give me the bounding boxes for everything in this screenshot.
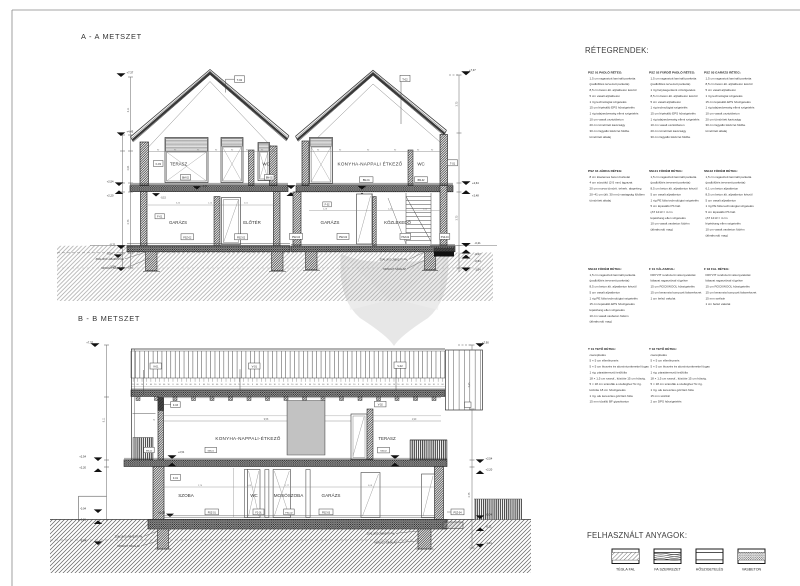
svg-text:10: 10: [318, 384, 320, 386]
svg-text:2,75: 2,75: [468, 492, 471, 497]
svg-text:-0,21: -0,21: [475, 241, 482, 245]
svg-text:-0,21: -0,21: [486, 525, 493, 529]
svg-text:+2,54: +2,54: [79, 455, 86, 459]
svg-text:FELHASZNÁLT ANYAGOK:: FELHASZNÁLT ANYAGOK:: [587, 531, 687, 540]
svg-text:60: 60: [137, 384, 139, 386]
svg-text:SM-03 FÖDÉM RÉTEG:: SM-03 FÖDÉM RÉTEG:: [588, 266, 622, 271]
svg-text:+7,37: +7,37: [86, 341, 93, 345]
svg-text:60: 60: [243, 384, 245, 386]
svg-text:ZSALUKŐ LÁBAZATI FAL: ZSALUKŐ LÁBAZATI FAL: [380, 258, 409, 261]
svg-text:MONOLIT SÁVALAP: MONOLIT SÁVALAP: [383, 268, 406, 271]
svg-text:-0,27: -0,27: [475, 252, 482, 256]
svg-text:V-02: V-02: [378, 404, 384, 407]
svg-text:10: 10: [265, 384, 267, 386]
svg-text:10: 10: [340, 384, 342, 386]
svg-text:10: 10: [221, 384, 223, 386]
svg-text:+2,54: +2,54: [178, 451, 185, 454]
svg-text:SM-02 FÖDÉM RÉTEG:: SM-02 FÖDÉM RÉTEG:: [704, 168, 738, 173]
svg-text:-1,04: -1,04: [475, 268, 482, 272]
svg-text:PSZ 03 GARÁZS RÉTEG:: PSZ 03 GARÁZS RÉTEG:: [704, 70, 741, 75]
svg-text:+2,54: +2,54: [107, 180, 114, 184]
svg-text:TERASZ: TERASZ: [170, 162, 188, 167]
svg-text:60: 60: [282, 384, 284, 386]
svg-text:10: 10: [313, 384, 315, 386]
svg-text:PSZ-02: PSZ-02: [339, 236, 348, 239]
svg-text:10: 10: [185, 384, 187, 386]
svg-text:FA SZERKEZET: FA SZERKEZET: [654, 567, 681, 571]
svg-text:10: 10: [327, 384, 329, 386]
svg-text:PSZ-01: PSZ-01: [208, 512, 217, 515]
svg-text:10: 10: [181, 384, 183, 386]
svg-text:60: 60: [229, 384, 231, 386]
svg-text:9,58: 9,58: [264, 419, 269, 421]
svg-text:TÉGLA FAL: TÉGLA FAL: [616, 566, 635, 571]
svg-text:2,73: 2,73: [127, 219, 130, 224]
svg-text:HŐSZIGETELÉS: HŐSZIGETELÉS: [696, 566, 724, 571]
svg-text:BM-01: BM-01: [363, 180, 370, 182]
svg-text:10: 10: [371, 384, 373, 386]
svg-text:60: 60: [269, 384, 271, 386]
svg-text:SM-02: SM-02: [146, 450, 153, 452]
svg-text:60: 60: [176, 384, 178, 386]
svg-text:BM-02: BM-02: [182, 178, 189, 180]
svg-text:WC: WC: [262, 162, 269, 167]
svg-text:+7,37: +7,37: [127, 71, 134, 75]
svg-text:GARÁZS: GARÁZS: [321, 219, 340, 225]
svg-text:KONYHA-NAPPALI-ÉTKEZŐ: KONYHA-NAPPALI-ÉTKEZŐ: [215, 435, 280, 441]
svg-text:RÉTEGRENDEK:: RÉTEGRENDEK:: [585, 46, 649, 55]
svg-text:10: 10: [433, 384, 435, 386]
svg-text:8: 8: [172, 384, 173, 386]
svg-text:PSZ-04: PSZ-04: [441, 237, 450, 239]
svg-text:B - B METSZET: B - B METSZET: [78, 314, 140, 323]
svg-text:PSZ 04 JÁRDA RÉTEG:: PSZ 04 JÁRDA RÉTEG:: [588, 168, 622, 173]
svg-text:KÖZLEKEDŐ: KÖZLEKEDŐ: [384, 220, 411, 225]
svg-text:ZSALUKŐ LÁBAZATI FAL: ZSALUKŐ LÁBAZATI FAL: [96, 258, 125, 261]
svg-text:-0,04: -0,04: [80, 507, 87, 511]
svg-text:KONYHA-NAPPALI ÉTKEZŐ: KONYHA-NAPPALI ÉTKEZŐ: [338, 161, 403, 167]
svg-text:10: 10: [168, 384, 170, 386]
svg-text:V-02: V-02: [397, 364, 403, 368]
svg-text:10: 10: [132, 384, 134, 386]
svg-text:60: 60: [309, 384, 311, 386]
svg-text:10: 10: [274, 384, 276, 386]
svg-text:T 02 TETŐ RÉTEG:: T 02 TETŐ RÉTEG:: [649, 346, 677, 351]
svg-text:-0,15: -0,15: [161, 198, 167, 200]
svg-text:10: 10: [380, 384, 382, 386]
svg-text:PSZ-02: PSZ-02: [183, 237, 192, 240]
svg-text:10: 10: [397, 384, 399, 386]
svg-text:ZSALUKŐ LÁBAZATI FAL: ZSALUKŐ LÁBAZATI FAL: [367, 532, 396, 535]
svg-text:8: 8: [252, 384, 253, 386]
svg-text:10: 10: [154, 384, 156, 386]
svg-text:WC: WC: [250, 493, 257, 498]
svg-text:10: 10: [424, 384, 426, 386]
svg-text:-0,21: -0,21: [80, 518, 87, 522]
svg-text:+2,64: +2,64: [472, 181, 479, 185]
svg-text:F-03: F-03: [173, 404, 179, 407]
svg-text:60: 60: [335, 384, 337, 386]
svg-text:60: 60: [428, 384, 430, 386]
svg-text:2,64: 2,64: [127, 165, 130, 170]
svg-text:3,11: 3,11: [127, 107, 130, 112]
svg-text:ZSALUKŐ LÁBAZATI FAL: ZSALUKŐ LÁBAZATI FAL: [115, 535, 144, 538]
svg-text:8: 8: [358, 384, 359, 386]
svg-text:PSZ-02: PSZ-02: [237, 237, 246, 240]
svg-text:10: 10: [353, 384, 355, 386]
svg-text:5,11: 5,11: [103, 417, 106, 422]
svg-text:PSZ 01 PADLÓ RÉTEG:: PSZ 01 PADLÓ RÉTEG:: [588, 70, 622, 75]
svg-text:10: 10: [406, 384, 408, 386]
svg-text:60: 60: [389, 384, 391, 386]
svg-text:GARÁZS: GARÁZS: [169, 220, 187, 225]
svg-text:PSZ 02 FÜRDŐ PADLÓ RÉTEG:: PSZ 02 FÜRDŐ PADLÓ RÉTEG:: [649, 70, 695, 75]
svg-text:8: 8: [305, 384, 306, 386]
svg-text:60: 60: [349, 384, 351, 386]
svg-text:10: 10: [419, 384, 421, 386]
svg-text:VASBETON: VASBETON: [742, 567, 762, 571]
svg-text:+2,20: +2,20: [486, 468, 493, 472]
svg-text:10: 10: [260, 384, 262, 386]
svg-text:BM-02: BM-02: [266, 178, 273, 180]
svg-text:SM-01: SM-01: [208, 450, 215, 452]
svg-text:MONOLIT SÁVALAP: MONOLIT SÁVALAP: [101, 267, 124, 270]
svg-text:10: 10: [212, 384, 214, 386]
svg-text:V-01: V-01: [252, 365, 258, 369]
svg-text:±0,00: ±0,00: [158, 511, 165, 515]
svg-text:T-01: T-01: [450, 162, 456, 166]
svg-text:1,90: 1,90: [412, 419, 417, 421]
svg-text:60: 60: [415, 384, 417, 386]
svg-text:8: 8: [438, 384, 439, 386]
svg-text:8: 8: [279, 384, 280, 386]
svg-text:F-01: F-01: [173, 477, 179, 480]
svg-text:-0,04: -0,04: [486, 513, 493, 517]
svg-text:60: 60: [442, 384, 444, 386]
svg-text:T-02: T-02: [402, 77, 408, 81]
svg-text:60: 60: [402, 384, 404, 386]
svg-text:8: 8: [385, 384, 386, 386]
svg-text:60: 60: [190, 384, 192, 386]
svg-text:TERASZ: TERASZ: [378, 436, 396, 441]
svg-text:MONOLIT SÁVALAP: MONOLIT SÁVALAP: [117, 545, 140, 548]
svg-text:60: 60: [150, 384, 152, 386]
svg-text:MOSÓSZOBA: MOSÓSZOBA: [274, 492, 305, 498]
svg-text:ELŐTÉR: ELŐTÉR: [243, 220, 261, 225]
svg-text:-1,04: -1,04: [80, 539, 87, 543]
svg-text:SM-02: SM-02: [380, 451, 387, 453]
svg-text:10: 10: [194, 384, 196, 386]
svg-text:F-02: F-02: [325, 204, 331, 207]
svg-text:WC: WC: [417, 162, 424, 167]
svg-text:PSZ-03: PSZ-03: [322, 512, 331, 515]
svg-text:60: 60: [163, 384, 165, 386]
svg-text:SM-01 FÖDÉM RÉTEG:: SM-01 FÖDÉM RÉTEG:: [649, 168, 683, 173]
svg-text:60: 60: [375, 384, 377, 386]
svg-text:-1,04: -1,04: [486, 541, 493, 545]
svg-text:10: 10: [344, 384, 346, 386]
svg-text:10: 10: [141, 384, 143, 386]
svg-text:10: 10: [300, 384, 302, 386]
svg-text:10: 10: [234, 384, 236, 386]
svg-text:-0,54: -0,54: [106, 252, 113, 256]
svg-text:60: 60: [296, 384, 298, 386]
svg-text:8: 8: [411, 384, 412, 386]
svg-text:PSZ-02: PSZ-02: [401, 237, 410, 239]
svg-text:+2,20: +2,20: [79, 466, 86, 470]
svg-text:8: 8: [225, 384, 226, 386]
svg-text:+4,45: +4,45: [127, 130, 134, 134]
svg-text:10: 10: [287, 384, 289, 386]
svg-text:F 02 FAL RÉTEG:: F 02 FAL RÉTEG:: [704, 266, 729, 271]
svg-text:8: 8: [199, 384, 200, 386]
svg-text:60: 60: [256, 384, 258, 386]
svg-text:+2,48: +2,48: [472, 194, 479, 198]
svg-text:T-02: T-02: [237, 78, 243, 82]
svg-text:10: 10: [247, 384, 249, 386]
svg-text:BM-02: BM-02: [418, 180, 425, 182]
svg-text:+7,90: +7,90: [482, 341, 489, 345]
svg-text:10: 10: [207, 384, 209, 386]
svg-text:10: 10: [393, 384, 395, 386]
svg-text:+2,20: +2,20: [107, 194, 114, 198]
svg-text:+7,37: +7,37: [469, 68, 476, 72]
svg-text:60: 60: [362, 384, 364, 386]
svg-text:PSZ-04: PSZ-04: [292, 236, 301, 239]
svg-text:F-01: F-01: [157, 216, 163, 219]
svg-text:60: 60: [203, 384, 205, 386]
svg-text:+2,54: +2,54: [486, 457, 493, 461]
svg-text:10: 10: [366, 384, 368, 386]
svg-text:T 01 TETŐ RÉTEG:: T 01 TETŐ RÉTEG:: [588, 346, 616, 351]
svg-text:F2-01: F2-01: [255, 512, 262, 515]
svg-text:+2,20: +2,20: [202, 186, 209, 188]
svg-text:F 01 VÁLASZFAL:: F 01 VÁLASZFAL:: [649, 266, 675, 271]
svg-text:GARÁZS: GARÁZS: [322, 492, 341, 498]
svg-text:10: 10: [159, 384, 161, 386]
svg-text:PSZ-04: PSZ-04: [453, 512, 462, 515]
svg-text:MONOLIT SÁVALAP: MONOLIT SÁVALAP: [374, 542, 397, 545]
svg-text:60: 60: [216, 384, 218, 386]
svg-text:V-01: V-01: [153, 365, 159, 369]
svg-text:60: 60: [322, 384, 324, 386]
svg-text:-0,21: -0,21: [109, 243, 116, 247]
svg-text:8: 8: [332, 384, 333, 386]
svg-text:PSZ-02: PSZ-02: [285, 513, 293, 515]
svg-text:10: 10: [291, 384, 293, 386]
svg-text:3,73: 3,73: [456, 215, 459, 220]
svg-text:-0,54: -0,54: [475, 259, 482, 263]
svg-text:A - A METSZET: A - A METSZET: [81, 32, 142, 41]
svg-text:SZOBA: SZOBA: [178, 493, 195, 498]
svg-text:8: 8: [146, 384, 147, 386]
svg-text:3,43: 3,43: [468, 382, 471, 387]
svg-text:F-03: F-03: [156, 162, 162, 166]
svg-text:3,73: 3,73: [456, 101, 459, 106]
